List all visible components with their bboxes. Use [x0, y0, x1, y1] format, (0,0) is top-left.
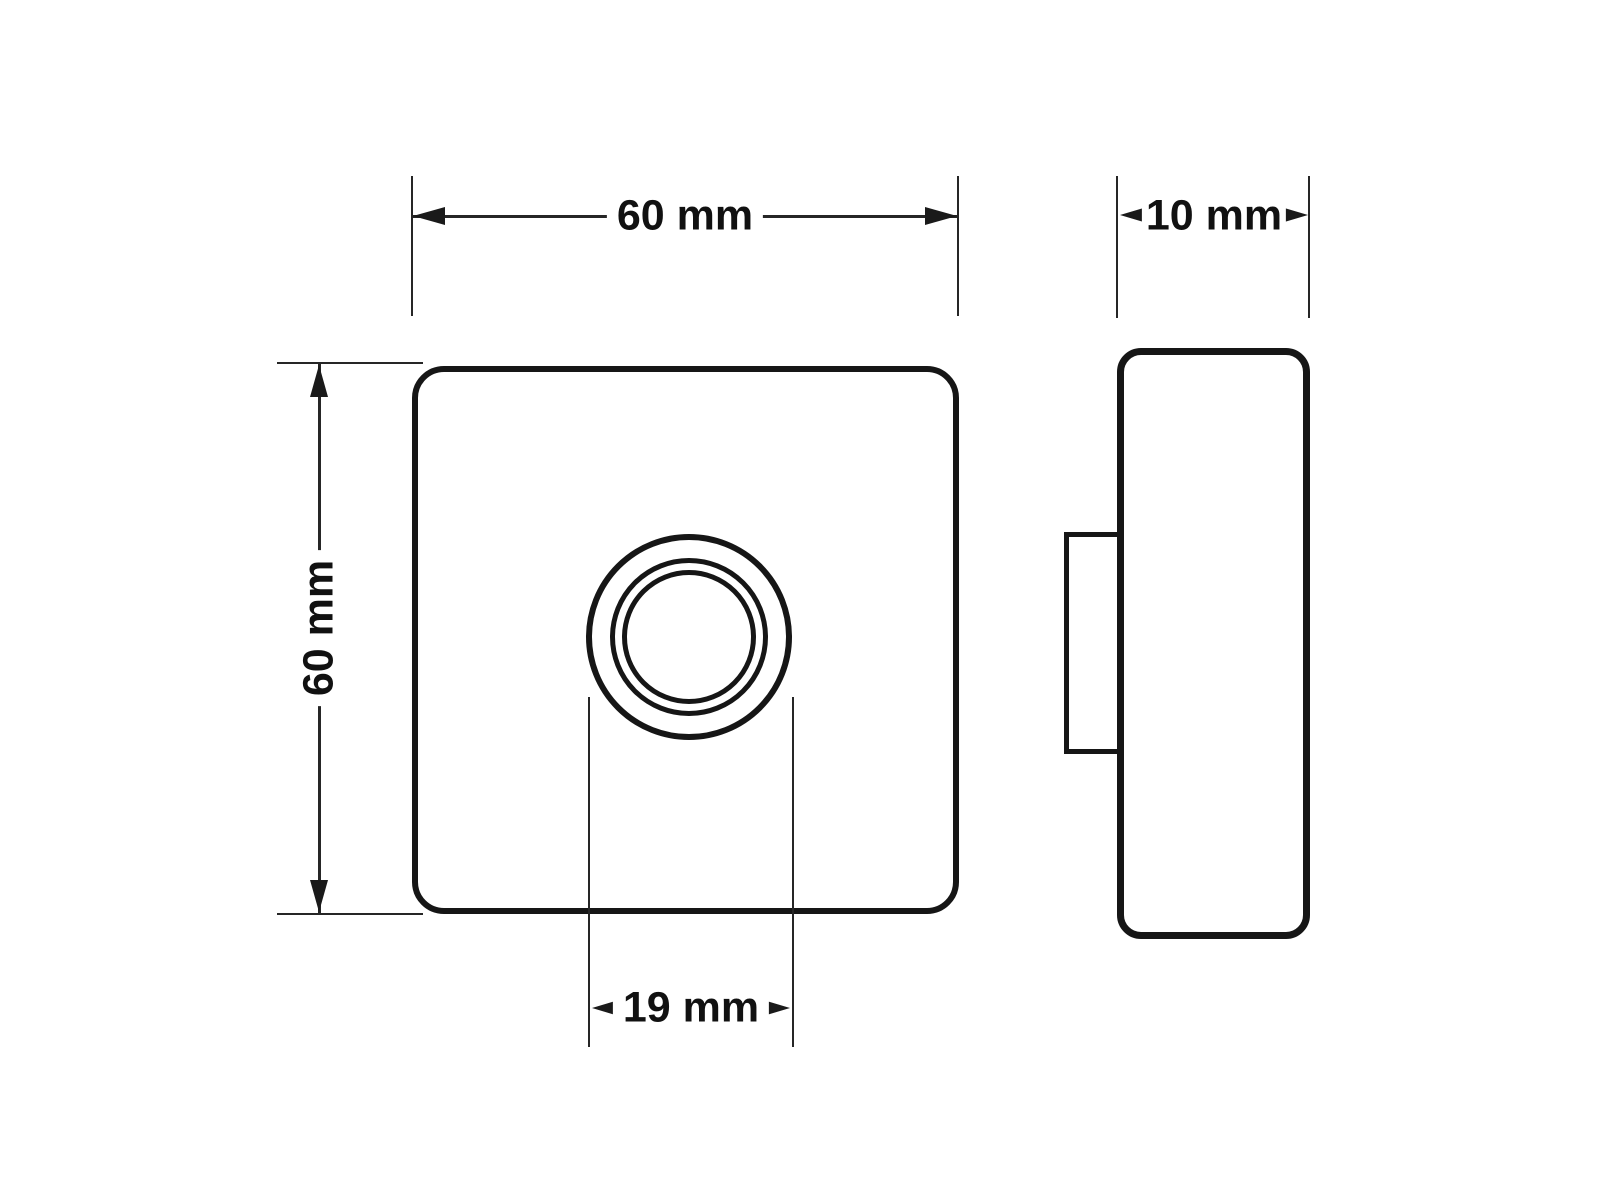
arrowhead-height-top-icon: [310, 365, 328, 397]
extension-line-height-top: [277, 362, 423, 364]
side-view-button-protrusion: [1064, 532, 1117, 754]
extension-line-depth-right: [1308, 176, 1310, 318]
side-view-body: [1117, 348, 1310, 939]
dim-label-side-depth: 10 mm: [1142, 192, 1286, 239]
extension-line-width-left: [411, 176, 413, 316]
extension-line-width-right: [957, 176, 959, 316]
extension-line-height-bottom: [277, 913, 423, 915]
arrowhead-width-left-icon: [413, 207, 445, 225]
arrowhead-width-right-icon: [925, 207, 957, 225]
dim-label-front-width: 60 mm: [607, 192, 763, 239]
extension-line-button-left: [588, 697, 590, 1047]
dim-label-button-diameter: 19 mm: [613, 984, 769, 1031]
technical-drawing-canvas: 60 mm 60 mm 19 mm 10 mm: [0, 0, 1600, 1200]
dim-label-front-height: 60 mm: [295, 550, 342, 706]
button-ring-inner: [622, 570, 756, 704]
extension-line-depth-left: [1116, 176, 1118, 318]
arrowhead-height-bottom-icon: [310, 880, 328, 912]
extension-line-button-right: [792, 697, 794, 1047]
